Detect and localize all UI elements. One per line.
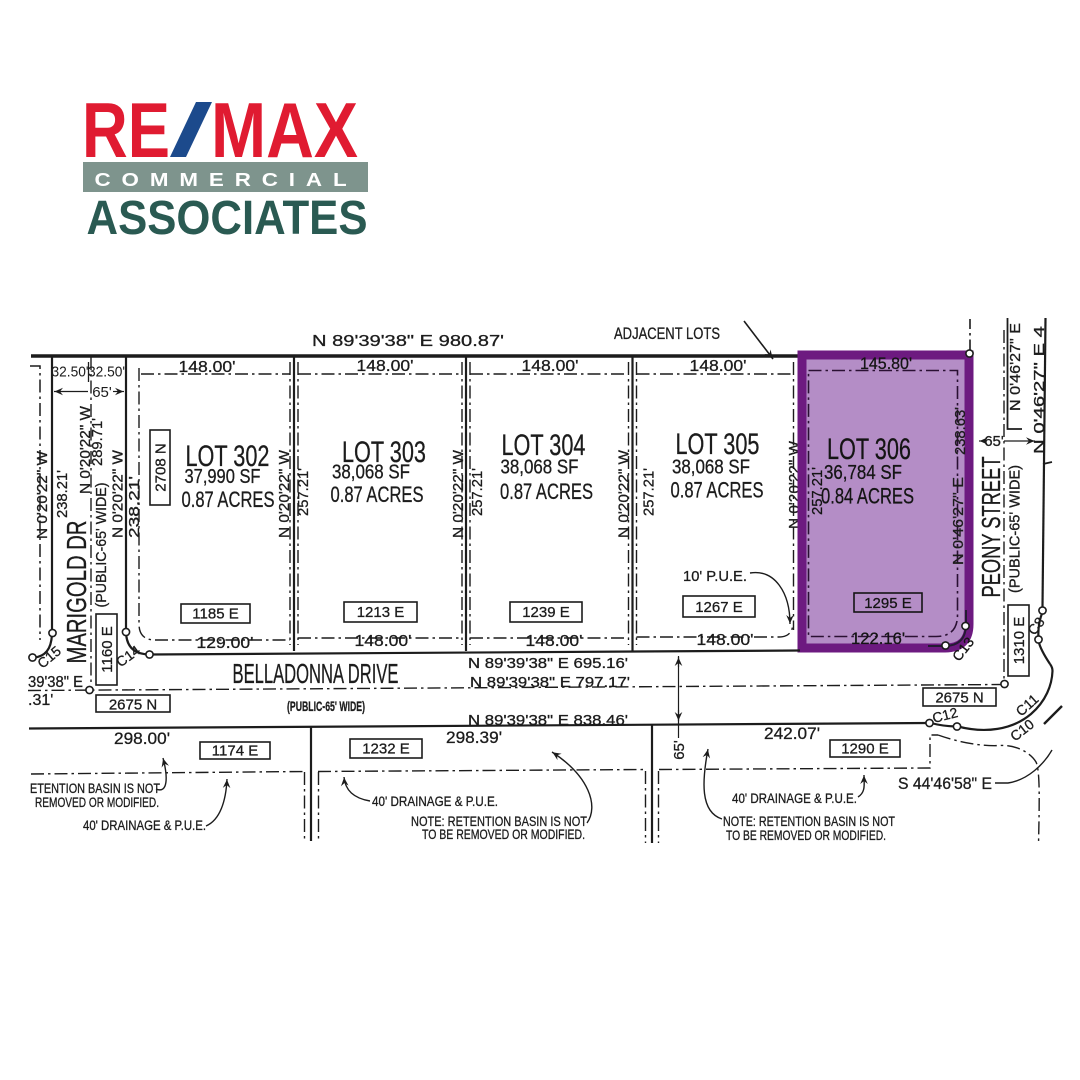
svg-text:2675 N: 2675 N — [109, 697, 157, 714]
svg-text:65': 65' — [671, 740, 688, 760]
svg-text:COMMERCIAL: COMMERCIAL — [95, 169, 358, 190]
svg-text:2708 N: 2708 N — [153, 443, 170, 491]
svg-text:257.21': 257.21' — [469, 468, 486, 516]
svg-text:257.21': 257.21' — [809, 467, 826, 515]
svg-text:1160 E: 1160 E — [99, 626, 116, 672]
svg-text:65': 65' — [92, 384, 112, 401]
svg-text:129.00': 129.00' — [197, 635, 254, 652]
svg-text:(PUBLIC-65' WIDE): (PUBLIC-65' WIDE) — [1008, 465, 1024, 593]
svg-text:N 89'39'38" E 838.46': N 89'39'38" E 838.46' — [468, 713, 628, 729]
svg-text:145.80': 145.80' — [860, 355, 912, 373]
svg-text:32.50': 32.50' — [52, 364, 89, 381]
svg-text:N 0'46'27" E 4: N 0'46'27" E 4 — [1031, 326, 1048, 454]
svg-text:38,068 SF: 38,068 SF — [332, 462, 410, 484]
svg-text:TO BE REMOVED OR MODIFIED.: TO BE REMOVED OR MODIFIED. — [422, 827, 585, 842]
svg-text:RE: RE — [82, 86, 170, 174]
svg-text:.31': .31' — [28, 692, 53, 709]
svg-text:0.87 ACRES: 0.87 ACRES — [331, 482, 424, 507]
svg-text:BELLADONNA DRIVE: BELLADONNA DRIVE — [233, 658, 399, 689]
svg-text:148.00': 148.00' — [526, 633, 583, 650]
svg-text:N 89'39'38" E 980.87': N 89'39'38" E 980.87' — [312, 333, 504, 350]
svg-text:122.16': 122.16' — [851, 630, 905, 648]
svg-text:148.00': 148.00' — [357, 358, 414, 375]
svg-text:1185 E: 1185 E — [192, 606, 238, 623]
svg-text:PEONY STREET: PEONY STREET — [976, 456, 1006, 597]
svg-text:N 0'20'22" W: N 0'20'22" W — [34, 450, 51, 539]
svg-text:N 89'39'38" E 695.16': N 89'39'38" E 695.16' — [468, 656, 628, 672]
svg-text:N 0'20'22" W: N 0'20'22" W — [616, 449, 633, 538]
svg-text:C15: C15 — [34, 642, 64, 671]
svg-text:257.21': 257.21' — [641, 468, 658, 516]
svg-text:MARIGOLD DR: MARIGOLD DR — [61, 521, 92, 664]
svg-text:N 0'20'22" W: N 0'20'22" W — [276, 449, 293, 538]
svg-text:238.63': 238.63' — [952, 407, 969, 455]
svg-text:298.00': 298.00' — [114, 729, 170, 748]
svg-text:N 0'20'22" W: N 0'20'22" W — [110, 449, 127, 538]
svg-text:298.39': 298.39' — [446, 728, 502, 747]
svg-text:TO BE REMOVED OR MODIFIED.: TO BE REMOVED OR MODIFIED. — [726, 828, 886, 843]
svg-text:REMOVED OR MODIFIED.: REMOVED OR MODIFIED. — [35, 795, 159, 810]
svg-text:238.21': 238.21' — [54, 470, 71, 518]
svg-text:S 44'46'58" E: S 44'46'58" E — [898, 774, 992, 793]
svg-text:148.00': 148.00' — [522, 358, 579, 375]
svg-text:N 89'39'38" E 797.17': N 89'39'38" E 797.17' — [470, 675, 630, 691]
svg-text:242.07': 242.07' — [764, 724, 820, 743]
svg-text:32.50': 32.50' — [88, 364, 125, 381]
svg-text:40' DRAINAGE & P.U.E.: 40' DRAINAGE & P.U.E. — [732, 791, 857, 806]
svg-text:MAX: MAX — [211, 86, 358, 174]
svg-text:1310 E: 1310 E — [1011, 617, 1028, 665]
svg-text:NOTE: RETENTION BASIN IS NOT: NOTE: RETENTION BASIN IS NOT — [723, 814, 895, 829]
svg-text:C11: C11 — [1012, 691, 1041, 720]
svg-text:(PUBLIC-65' WIDE): (PUBLIC-65' WIDE) — [287, 698, 365, 714]
svg-text:ETENTION BASIN IS NOT: ETENTION BASIN IS NOT — [30, 781, 160, 796]
svg-text:N 0'46'27" E: N 0'46'27" E — [950, 477, 967, 565]
svg-text:38,068 SF: 38,068 SF — [501, 457, 579, 479]
svg-text:39'38" E: 39'38" E — [28, 674, 83, 691]
svg-text:37,990 SF: 37,990 SF — [185, 466, 261, 488]
svg-text:238.21': 238.21' — [126, 476, 143, 538]
svg-text:65': 65' — [984, 433, 1004, 450]
svg-text:1174 E: 1174 E — [212, 743, 258, 760]
svg-text:148.00': 148.00' — [179, 359, 236, 376]
svg-text:(PUBLIC-65' WIDE): (PUBLIC-65' WIDE) — [94, 483, 110, 608]
svg-text:0.87 ACRES: 0.87 ACRES — [500, 479, 593, 504]
svg-text:38,068 SF: 38,068 SF — [672, 457, 750, 479]
svg-text:0.87 ACRES: 0.87 ACRES — [671, 478, 764, 503]
svg-text:ASSOCIATES: ASSOCIATES — [87, 192, 368, 245]
svg-text:1239 E: 1239 E — [522, 604, 570, 621]
svg-text:40' DRAINAGE & P.U.E.: 40' DRAINAGE & P.U.E. — [83, 818, 206, 833]
svg-text:N 0'20'22" W: N 0'20'22" W — [450, 449, 467, 538]
svg-text:2675 N: 2675 N — [935, 690, 983, 707]
svg-text:289.71': 289.71' — [89, 418, 106, 466]
svg-text:40' DRAINAGE & P.U.E.: 40' DRAINAGE & P.U.E. — [372, 794, 498, 809]
svg-text:148.00': 148.00' — [690, 358, 747, 375]
svg-text:0.84 ACRES: 0.84 ACRES — [821, 484, 914, 509]
svg-text:10' P.U.E.: 10' P.U.E. — [683, 568, 747, 585]
svg-text:ADJACENT LOTS: ADJACENT LOTS — [614, 324, 720, 343]
svg-text:0.87 ACRES: 0.87 ACRES — [182, 487, 275, 512]
svg-text:1213 E: 1213 E — [357, 604, 405, 621]
svg-text:1290 E: 1290 E — [841, 741, 889, 758]
svg-text:N 0'46'27" E: N 0'46'27" E — [1007, 323, 1024, 411]
svg-text:1232 E: 1232 E — [362, 741, 410, 758]
svg-text:257.21': 257.21' — [295, 468, 312, 516]
svg-text:36,784 SF: 36,784 SF — [824, 462, 902, 484]
svg-text:1267 E: 1267 E — [695, 599, 743, 616]
svg-text:148.00': 148.00' — [697, 632, 754, 649]
svg-text:148.00': 148.00' — [355, 633, 412, 650]
svg-text:1295 E: 1295 E — [864, 595, 912, 612]
